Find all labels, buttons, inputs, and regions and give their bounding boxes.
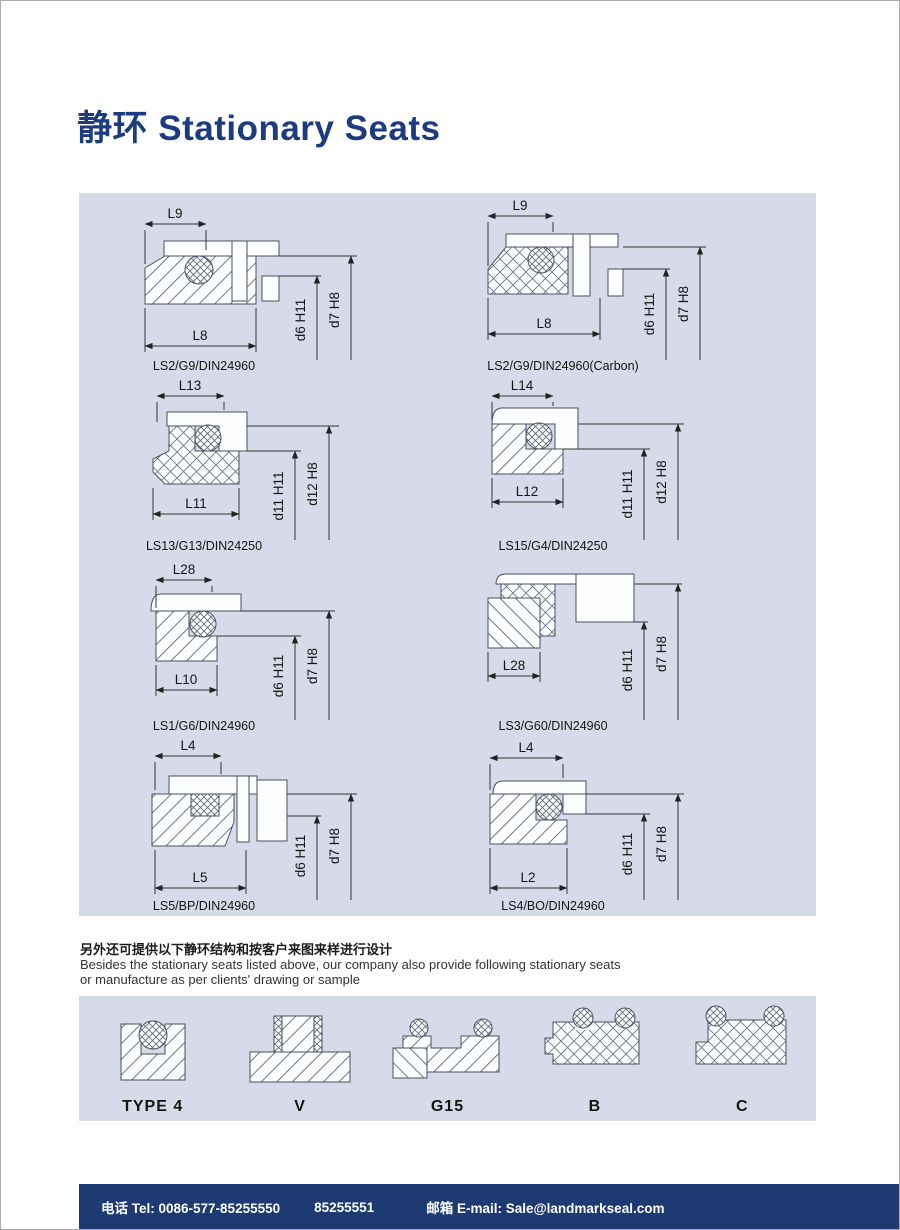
slot bbox=[237, 776, 249, 842]
outer-dia-label: d7 H8 bbox=[305, 648, 320, 684]
o-ring bbox=[195, 425, 221, 451]
band-leg bbox=[563, 794, 586, 814]
profiles-panel: TYPE 4 V G15 bbox=[79, 996, 816, 1121]
inner-dia-label: d11 H11 bbox=[271, 471, 286, 520]
diagram-ls15-g4-din24250: L14 L12 d11 H11 d12 H8 LS15/G4/DIN24250 bbox=[448, 374, 797, 554]
seat-section bbox=[488, 598, 540, 648]
profile-label: TYPE 4 bbox=[122, 1098, 183, 1116]
o-ring bbox=[526, 423, 552, 449]
top-dim-label: L9 bbox=[512, 198, 527, 213]
diagram-caption: LS3/G60/DIN24960 bbox=[498, 719, 607, 733]
outer-dia-label: d7 H8 bbox=[327, 828, 342, 864]
profile-b: B bbox=[535, 1002, 655, 1116]
profile-drawing bbox=[387, 1002, 507, 1094]
top-dim-label: L13 bbox=[179, 378, 202, 393]
diagram-caption: LS4/BO/DIN24960 bbox=[501, 899, 605, 913]
bottom-dim-label: L28 bbox=[502, 658, 525, 673]
diagram-ls5-bp-din24960: L4 L5 d6 H11 d7 H8 LS5/BP/DIN24960 bbox=[99, 734, 448, 914]
bottom-dim-label: L10 bbox=[175, 672, 198, 687]
base bbox=[250, 1052, 350, 1082]
footer-phone-2: 85255551 bbox=[314, 1200, 374, 1215]
o-ring bbox=[185, 256, 213, 284]
gasket-left bbox=[274, 1016, 282, 1052]
bottom-dim-label: L11 bbox=[185, 496, 207, 511]
profile-label: B bbox=[589, 1098, 602, 1116]
o-ring bbox=[536, 794, 562, 820]
footer-bar: 电话 Tel: 0086-577-85255550 85255551 邮箱 E-… bbox=[79, 1184, 900, 1230]
top-dim-label: L28 bbox=[173, 562, 196, 577]
profile-type-4: TYPE 4 bbox=[93, 1002, 213, 1116]
step bbox=[262, 276, 279, 301]
outer-dia-label: d7 H8 bbox=[654, 826, 669, 862]
retainer-band bbox=[506, 234, 618, 247]
slot bbox=[232, 241, 247, 301]
top-dim-label: L4 bbox=[180, 738, 196, 753]
diagram-ls4-bo-din24960: L4 L2 d6 H11 d7 H8 LS4/BO/DIN24960 bbox=[448, 734, 797, 914]
note-english-1: Besides the stationary seats listed abov… bbox=[80, 957, 621, 972]
diagram-ls2-g9-din24960-carbon: L9 L8 d6 H11 d7 H8 LS2/G9/DIN24960(Carbo… bbox=[448, 194, 797, 374]
step bbox=[608, 269, 623, 296]
retainer-band bbox=[493, 781, 586, 794]
diagram-caption: LS13/G13/DIN24250 bbox=[146, 539, 262, 553]
step bbox=[257, 780, 287, 841]
seal-cross-section: L28 L10 d6 H11 d7 H8 LS1/G6/DIN24960 bbox=[99, 554, 379, 734]
outer-dia-label: d7 H8 bbox=[676, 286, 691, 322]
inner-dia-label: d6 H11 bbox=[293, 299, 308, 342]
o-ring-left bbox=[706, 1006, 726, 1026]
diagram-ls3-g60-din24960: L28 d6 H11 d7 H8 LS3/G60/DIN24960 bbox=[448, 554, 797, 734]
note-english-2: or manufacture as per clients' drawing o… bbox=[80, 972, 621, 987]
retainer-band bbox=[164, 241, 279, 256]
o-ring bbox=[190, 611, 216, 637]
seal-cross-section: L28 d6 H11 d7 H8 LS3/G60/DIN24960 bbox=[448, 554, 728, 734]
o-ring-right bbox=[764, 1006, 784, 1026]
diagram-caption: LS2/G9/DIN24960(Carbon) bbox=[487, 359, 638, 373]
profile-label: G15 bbox=[431, 1098, 464, 1116]
diagram-caption: LS5/BP/DIN24960 bbox=[153, 899, 255, 913]
footer-email: 邮箱 E-mail: Sale@landmarkseal.com bbox=[426, 1197, 664, 1217]
profile-label: C bbox=[736, 1098, 749, 1116]
retainer-band bbox=[496, 574, 576, 584]
seal-cross-section: L4 L5 d6 H11 d7 H8 LS5/BP/DIN24960 bbox=[99, 734, 379, 914]
diagram-caption: LS1/G6/DIN24960 bbox=[153, 719, 255, 733]
mating-ring bbox=[576, 574, 634, 622]
catalog-page: 静环 Stationary Seats L9 L8 d6 H11 d7 H8 bbox=[0, 0, 900, 1230]
diagram-caption: LS2/G9/DIN24960 bbox=[153, 359, 255, 373]
inner-dia-label: d6 H11 bbox=[642, 293, 657, 336]
bottom-dim-label: L12 bbox=[515, 484, 538, 499]
o-ring-left bbox=[410, 1019, 428, 1037]
profile-drawing bbox=[682, 1002, 802, 1094]
inner-dia-label: d6 H11 bbox=[271, 655, 286, 698]
inner-dia-label: d6 H11 bbox=[620, 833, 635, 876]
o-ring bbox=[139, 1021, 167, 1049]
outer-dia-label: d12 H8 bbox=[654, 460, 669, 504]
note-block: 另外还可提供以下静环结构和按客户来图来样进行设计 Besides the sta… bbox=[80, 942, 621, 987]
seal-insert bbox=[191, 794, 219, 816]
bottom-dim-label: L5 bbox=[192, 870, 207, 885]
o-ring-left bbox=[573, 1008, 593, 1028]
profile-label: V bbox=[294, 1098, 306, 1116]
profile-v: V bbox=[240, 1002, 360, 1116]
gasket-right bbox=[314, 1016, 322, 1052]
bottom-dim-label: L2 bbox=[520, 870, 535, 885]
seal-cross-section: L4 L2 d6 H11 d7 H8 LS4/BO/DIN24960 bbox=[448, 734, 728, 914]
page-title: 静环 Stationary Seats bbox=[77, 100, 441, 151]
diagram-ls13-g13-din24250: L13 L11 d11 H11 d12 H8 LS13/G13/DIN24250 bbox=[99, 374, 448, 554]
profile-c: C bbox=[682, 1002, 802, 1116]
profile-drawing bbox=[535, 1002, 655, 1094]
profile-drawing bbox=[240, 1002, 360, 1094]
slot bbox=[573, 234, 590, 296]
diagram-ls1-g6-din24960: L28 L10 d6 H11 d7 H8 LS1/G6/DIN24960 bbox=[99, 554, 448, 734]
profile-g15: G15 bbox=[387, 1002, 507, 1116]
o-ring-right bbox=[474, 1019, 492, 1037]
seat-section-carbon bbox=[488, 247, 568, 294]
outer-dia-label: d7 H8 bbox=[654, 636, 669, 672]
stem bbox=[282, 1016, 314, 1052]
seal-cross-section: L9 L8 d6 H11 d7 H8 LS2/G9/DIN24960 bbox=[99, 194, 379, 374]
bottom-dim-label: L8 bbox=[536, 316, 551, 331]
footer-phone: 电话 Tel: 0086-577-85255550 bbox=[101, 1197, 280, 1217]
seal-cross-section: L13 L11 d11 H11 d12 H8 LS13/G13/DIN24250 bbox=[99, 374, 379, 554]
clamp-block bbox=[393, 1048, 427, 1078]
top-dim-label: L4 bbox=[518, 740, 534, 755]
inner-dia-label: d11 H11 bbox=[620, 469, 635, 518]
profile-drawing bbox=[93, 1002, 213, 1094]
diagram-ls2-g9-din24960: L9 L8 d6 H11 d7 H8 LS2/G9/DIN24960 bbox=[99, 194, 448, 374]
seal-cross-section: L14 L12 d11 H11 d12 H8 LS15/G4/DIN24250 bbox=[448, 374, 728, 554]
inner-dia-label: d6 H11 bbox=[620, 649, 635, 692]
seat-block bbox=[696, 1020, 786, 1064]
outer-dia-label: d12 H8 bbox=[305, 462, 320, 506]
note-chinese: 另外还可提供以下静环结构和按客户来图来样进行设计 bbox=[80, 942, 621, 957]
seal-cross-section: L9 L8 d6 H11 d7 H8 LS2/G9/DIN24960(Carbo… bbox=[448, 194, 728, 374]
diagrams-panel: L9 L8 d6 H11 d7 H8 LS2/G9/DIN24960 bbox=[79, 193, 816, 916]
top-dim-label: L14 bbox=[510, 378, 533, 393]
inner-dia-label: d6 H11 bbox=[293, 835, 308, 878]
retainer-band bbox=[151, 594, 241, 611]
o-ring bbox=[528, 247, 554, 273]
o-ring-right bbox=[615, 1008, 635, 1028]
outer-dia-label: d7 H8 bbox=[327, 292, 342, 328]
diagram-caption: LS15/G4/DIN24250 bbox=[498, 539, 607, 553]
bottom-dim-label: L8 bbox=[192, 328, 207, 343]
top-dim-label: L9 bbox=[167, 206, 182, 221]
